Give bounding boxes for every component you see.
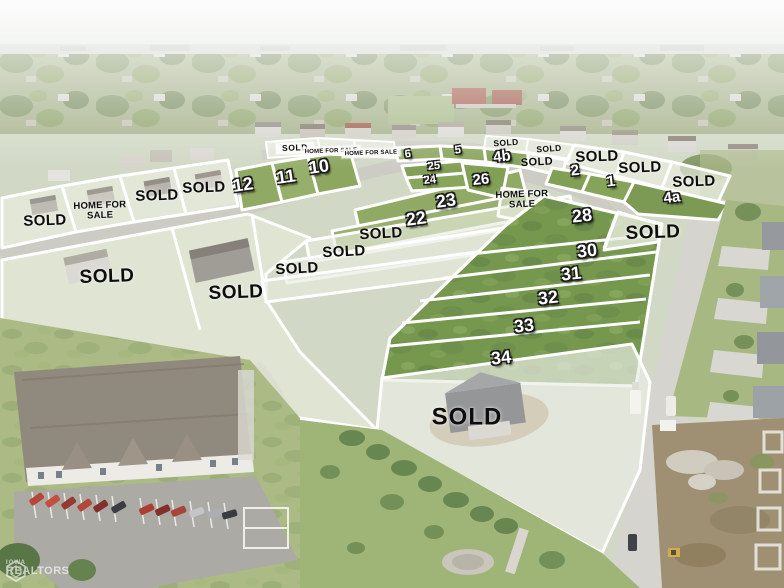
lot-label-26: 26 <box>472 171 490 188</box>
sold-label-n4: SOLD <box>618 159 662 176</box>
lot-label-22: 22 <box>405 208 427 229</box>
lot-label-1: 1 <box>606 174 616 191</box>
lot-label-12: 12 <box>232 174 254 195</box>
sold-label-big-w1: SOLD <box>79 266 134 288</box>
lot-label-23: 23 <box>435 190 457 211</box>
sold-label-n3: SOLD <box>575 148 619 165</box>
strip-label-home-for-sale-1: HOME FOR SALE <box>302 145 361 156</box>
lot-label-6: 6 <box>404 149 412 161</box>
sold-label-n2: SOLD <box>536 144 562 155</box>
lot-label-34: 34 <box>490 348 512 369</box>
lot-label-33: 33 <box>513 316 535 337</box>
lot-label-32: 32 <box>537 288 559 309</box>
lot-label-2: 2 <box>570 163 580 180</box>
sold-label-s: SOLD <box>432 404 503 429</box>
sold-label-big-w2: SOLD <box>208 282 263 304</box>
sold-label-band-2: SOLD <box>322 243 366 261</box>
hfs-label-east: HOME FOR SALE <box>495 189 548 211</box>
lot-label-25: 25 <box>427 161 440 174</box>
sold-label-band-1: SOLD <box>359 225 403 243</box>
strip-label-sold: SOLD <box>276 142 314 154</box>
lot-labels-layer: SOLDHOME FOR SALEHOME FOR SALE65SOLD4bSO… <box>0 0 784 588</box>
lot-label-4b: 4b <box>492 148 511 165</box>
sold-label-p1: SOLD <box>23 212 67 229</box>
lot-label-31: 31 <box>560 264 582 285</box>
sold-label-n1: SOLD <box>493 138 519 149</box>
iowa-realtors-logo-icon <box>6 560 26 582</box>
lot-label-24: 24 <box>423 175 436 188</box>
lot-label-4a: 4a <box>663 189 681 206</box>
sold-label-strip-e: SOLD <box>521 156 554 169</box>
sold-label-p4: SOLD <box>182 179 226 196</box>
brand-watermark: IOWA REALTORS <box>6 560 70 577</box>
sold-label-band-3: SOLD <box>275 260 319 278</box>
sold-label-p3: SOLD <box>135 187 179 204</box>
lot-label-5: 5 <box>454 145 462 157</box>
lot-label-10: 10 <box>308 156 330 177</box>
sold-label-n5: SOLD <box>672 173 716 190</box>
sold-label-e: SOLD <box>625 222 680 244</box>
hfs-label-west: HOME FOR SALE <box>73 200 126 222</box>
lot-label-28: 28 <box>571 206 593 227</box>
strip-label-home-for-sale-2: HOME FOR SALE <box>342 147 401 158</box>
aerial-lot-map: SOLDHOME FOR SALEHOME FOR SALE65SOLD4bSO… <box>0 0 784 588</box>
lot-label-11: 11 <box>275 166 296 187</box>
lot-label-30: 30 <box>576 241 598 262</box>
